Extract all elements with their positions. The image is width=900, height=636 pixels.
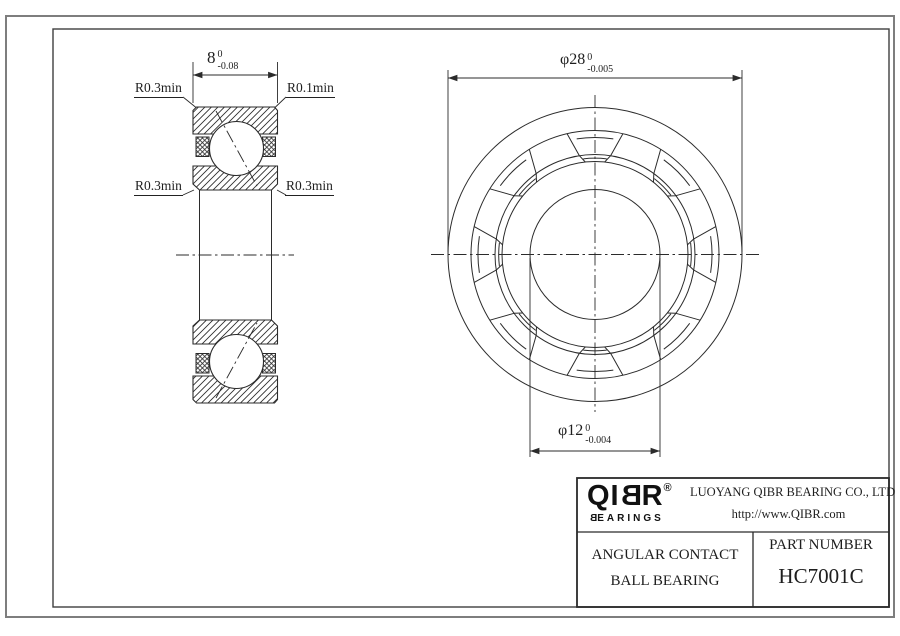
od-value: φ28 bbox=[560, 52, 585, 68]
product-line-1: ANGULAR CONTACT bbox=[578, 542, 752, 568]
radius-label-top-right: R0.1min bbox=[286, 81, 335, 98]
radius-label-mid-right: R0.3min bbox=[285, 179, 334, 196]
bore-tolerance: 0 -0.004 bbox=[585, 423, 611, 446]
cage-section-top-right bbox=[263, 137, 276, 157]
bore-tol-lower: -0.004 bbox=[585, 435, 611, 447]
bore-value: φ12 bbox=[558, 423, 583, 439]
leader-top-right bbox=[275, 97, 286, 108]
cage-section-top-left bbox=[196, 137, 209, 157]
cage-section-bottom-left bbox=[196, 354, 209, 374]
width-tol-upper: 0 bbox=[218, 49, 239, 61]
od-dimension-text: φ28 0 -0.005 bbox=[560, 52, 613, 75]
radius-label-mid-left: R0.3min bbox=[134, 179, 183, 196]
company-name: LUOYANG QIBR BEARING CO., LTD bbox=[690, 485, 887, 500]
registered-trademark-symbol: ® bbox=[664, 482, 672, 494]
width-dimension-text: 8 0 -0.08 bbox=[207, 49, 238, 72]
ball-bottom bbox=[210, 335, 264, 389]
od-tol-lower: -0.005 bbox=[587, 64, 613, 76]
sheet-frame bbox=[6, 16, 894, 617]
product-line-2: BALL BEARING bbox=[578, 568, 752, 594]
od-tol-upper: 0 bbox=[587, 52, 613, 64]
bore-dimension-text: φ12 0 -0.004 bbox=[558, 423, 611, 446]
product-description: ANGULAR CONTACT BALL BEARING bbox=[578, 542, 752, 594]
width-tol-lower: -0.08 bbox=[218, 61, 239, 73]
bore-tol-upper: 0 bbox=[585, 423, 611, 435]
leader-top-left bbox=[183, 97, 196, 108]
qibr-logo: QIBR® BEARINGS bbox=[587, 482, 672, 524]
part-number-value: HC7001C bbox=[754, 564, 888, 589]
od-tolerance: 0 -0.005 bbox=[587, 52, 613, 75]
width-tolerance: 0 -0.08 bbox=[218, 49, 239, 72]
part-number-label: PART NUMBER bbox=[754, 537, 888, 554]
company-info: LUOYANG QIBR BEARING CO., LTD http://www… bbox=[690, 485, 887, 522]
cage-section-bottom-right bbox=[263, 354, 276, 374]
logo-subtitle: BEARINGS bbox=[587, 514, 672, 524]
logo-wordmark: QIBR bbox=[587, 480, 664, 512]
company-website: http://www.QIBR.com bbox=[690, 507, 887, 522]
width-value: 8 bbox=[207, 49, 216, 66]
ball-top bbox=[210, 122, 264, 176]
radius-label-top-left: R0.3min bbox=[134, 81, 183, 98]
leader-mid-left bbox=[183, 190, 194, 195]
engineering-drawing-page: 8 0 -0.08 φ28 0 -0.005 φ12 0 -0.004 R0.3… bbox=[0, 0, 900, 636]
outer-border bbox=[6, 16, 894, 617]
